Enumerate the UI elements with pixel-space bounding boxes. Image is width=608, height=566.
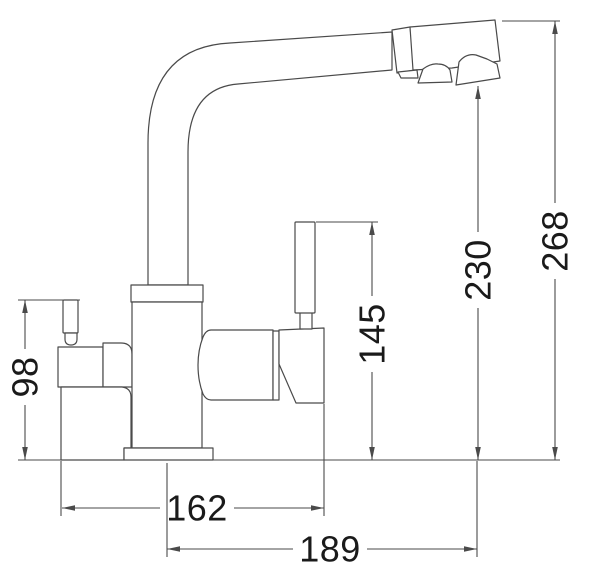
arrow-left xyxy=(62,505,75,511)
dimension-230: 230 xyxy=(458,86,499,460)
left-lever-collar xyxy=(65,333,77,345)
arrow-right xyxy=(464,546,477,552)
right-handle-bulb xyxy=(198,330,273,400)
arrow-left xyxy=(167,546,180,552)
arrow-down xyxy=(369,447,375,460)
dim-label-145: 145 xyxy=(352,303,393,365)
column-cap xyxy=(131,285,203,302)
spout-head-ledge xyxy=(398,70,418,78)
spout-tube xyxy=(148,32,392,285)
dim-label-189: 189 xyxy=(299,529,361,566)
main-column xyxy=(132,302,202,448)
right-lever-base xyxy=(279,328,324,403)
arrow-up xyxy=(369,222,375,235)
arrow-down xyxy=(552,447,558,460)
arrow-right xyxy=(311,505,324,511)
left-valve-lower-body xyxy=(61,387,131,460)
right-lever-neck xyxy=(300,312,312,329)
arrow-down xyxy=(22,447,28,460)
dimension-145: 145 xyxy=(316,222,393,460)
right-handle-collar xyxy=(273,331,279,400)
left-valve-upper-body xyxy=(58,347,103,387)
arrow-up xyxy=(552,21,558,34)
dim-label-98: 98 xyxy=(5,356,46,397)
dim-label-268: 268 xyxy=(535,210,576,272)
dim-label-162: 162 xyxy=(166,488,228,529)
arrow-up xyxy=(22,300,28,313)
base-flange xyxy=(124,448,213,460)
left-valve-connector xyxy=(103,343,132,387)
left-lever-stick xyxy=(63,300,78,333)
dim-label-230: 230 xyxy=(458,239,499,301)
right-lever-stick xyxy=(295,222,315,313)
faucet-dimension-drawing: 98 145 230 268 162 xyxy=(0,0,608,566)
dimension-268: 268 xyxy=(502,21,576,460)
arrow-down xyxy=(475,447,481,460)
arrow-up xyxy=(475,86,481,99)
